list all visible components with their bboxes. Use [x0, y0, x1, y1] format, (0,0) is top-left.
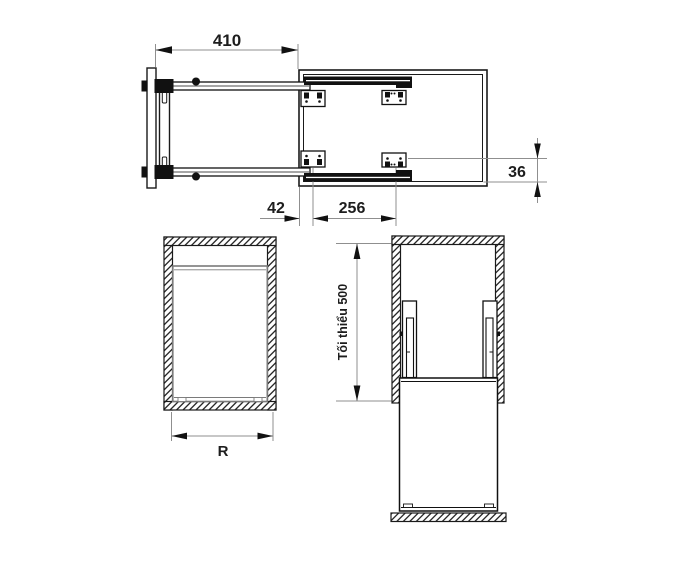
pull-out-unit-side [400, 378, 498, 511]
slide-bracket-right-side [483, 301, 500, 378]
front-section-view: R [164, 237, 276, 460]
arrowhead-right-icon [282, 46, 299, 53]
dim-label-36: 36 [508, 164, 526, 181]
arrowhead-right-icon [258, 433, 274, 440]
dim-label-min-height: Tối thiểu 500 [336, 284, 350, 360]
mounting-bracket-front-top [301, 91, 325, 107]
arrowhead-right-icon [285, 215, 300, 222]
dimension-min-height: Tối thiểu 500 [336, 244, 392, 402]
dim-label-256: 256 [339, 200, 366, 217]
arrowhead-down-icon [354, 386, 361, 402]
arrowhead-up-icon [534, 182, 541, 197]
floor-strip [391, 513, 506, 522]
front-frame-bar [160, 82, 170, 178]
top-view-plan: 410 42 256 36 [142, 31, 548, 226]
arrowhead-down-icon [534, 144, 541, 159]
arrowhead-up-icon [354, 244, 361, 260]
side-section-view: Tối thiểu 500 [336, 236, 506, 522]
arrowhead-left-icon [156, 46, 173, 53]
slide-bracket-left-side [400, 301, 417, 378]
dim-label-r: R [218, 443, 229, 460]
mounting-bracket-front-bottom [301, 151, 325, 167]
arrowhead-left-icon [172, 433, 188, 440]
dimension-pull-out-length: 410 [156, 31, 299, 69]
dim-label-42: 42 [267, 200, 285, 217]
dimension-internal-width: R [172, 412, 274, 460]
dimension-bracket-spacing: 256 [313, 200, 396, 222]
arrowhead-right-icon [381, 215, 396, 222]
drawing-canvas: 410 42 256 36 [0, 0, 700, 562]
cabinet-box-plan [299, 70, 487, 186]
dimension-rail-offset: 36 [508, 138, 541, 203]
mounting-bracket-rear-bottom [382, 153, 406, 167]
pull-out-unit-front [173, 266, 267, 402]
dimension-front-gap: 42 [260, 200, 300, 222]
dim-label-410: 410 [213, 31, 241, 50]
arrowhead-left-icon [313, 215, 328, 222]
technical-drawing: 410 42 256 36 [0, 0, 700, 562]
mounting-bracket-rear-top [382, 91, 406, 105]
